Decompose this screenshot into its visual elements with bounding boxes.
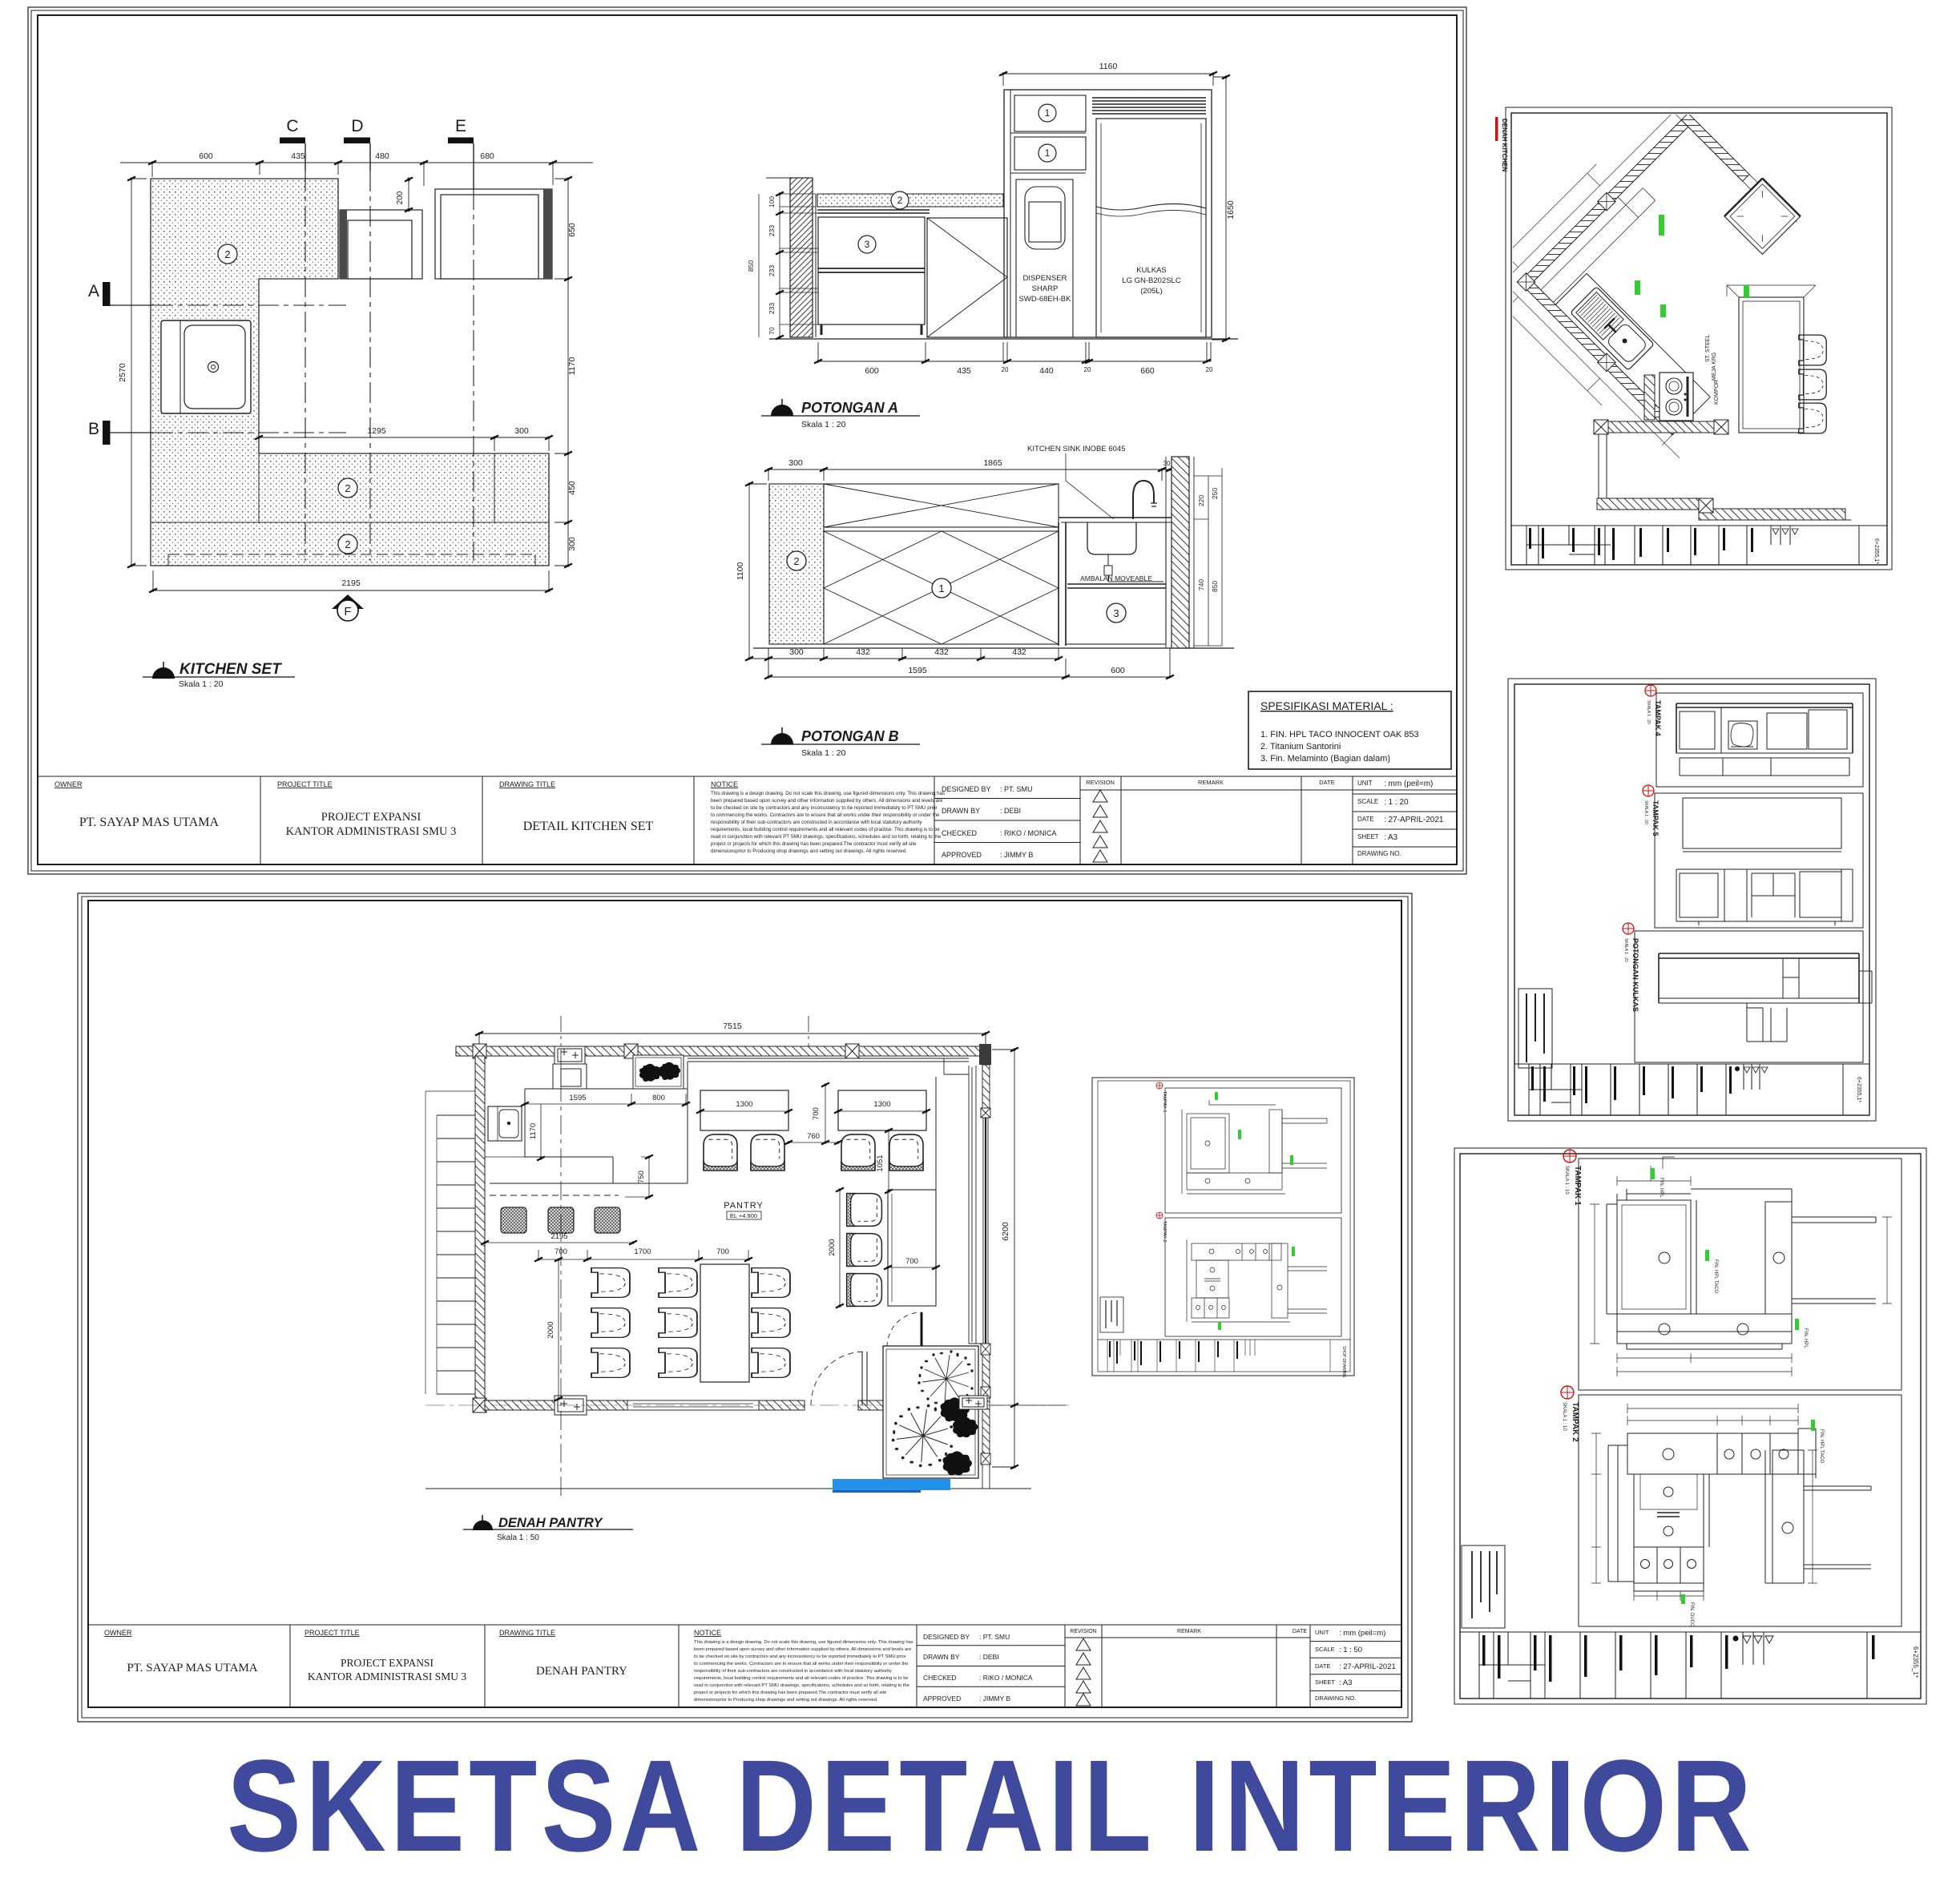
svg-text:read in conjunction with relev: read in conjunction with relevant PT SMU… bbox=[694, 1683, 909, 1688]
svg-text:NOTICE: NOTICE bbox=[694, 1629, 721, 1637]
svg-text:650: 650 bbox=[567, 223, 577, 237]
svg-text:FIN. HPL TACO: FIN. HPL TACO bbox=[1713, 1259, 1718, 1294]
svg-text:been prepared based upon surve: been prepared based upon survey and othe… bbox=[694, 1647, 911, 1652]
svg-text:SHARP: SHARP bbox=[1032, 284, 1059, 293]
svg-text:project or projects for which: project or projects for which this drawi… bbox=[711, 841, 917, 847]
svg-text:1865: 1865 bbox=[983, 458, 1002, 468]
svg-text:FIN. DUCO: FIN. DUCO bbox=[1689, 1602, 1694, 1627]
svg-text:3. Fin. Melaminto (Bagian dala: 3. Fin. Melaminto (Bagian dalam) bbox=[1260, 754, 1390, 764]
svg-text:: RIKO / MONICA: : RIKO / MONICA bbox=[979, 1674, 1033, 1682]
svg-text:DENAH PANTRY: DENAH PANTRY bbox=[498, 1516, 604, 1530]
svg-text:to commencing the works. Contr: to commencing the works. Contractors are… bbox=[694, 1662, 908, 1666]
svg-text:OWNER: OWNER bbox=[104, 1629, 132, 1637]
svg-text:2: 2 bbox=[897, 195, 903, 206]
svg-text:20: 20 bbox=[1084, 366, 1091, 373]
svg-text:: 27-APRIL-2021: : 27-APRIL-2021 bbox=[1339, 1662, 1396, 1671]
svg-text:740: 740 bbox=[1197, 579, 1205, 590]
svg-text:440: 440 bbox=[1039, 366, 1054, 376]
svg-text:Skala 1 : 20: Skala 1 : 20 bbox=[179, 679, 224, 689]
svg-text:2: 2 bbox=[345, 482, 350, 494]
svg-text:A: A bbox=[88, 282, 99, 300]
svg-text:SHEET: SHEET bbox=[1315, 1678, 1335, 1686]
svg-text:E: E bbox=[455, 117, 466, 135]
svg-text:PROJECT EXPANSI: PROJECT EXPANSI bbox=[321, 811, 421, 824]
svg-text:: RIKO / MONICA: : RIKO / MONICA bbox=[1000, 829, 1057, 837]
svg-text:been prepared based upon surve: been prepared based upon survey and othe… bbox=[711, 798, 943, 804]
svg-text:6+2355,1*: 6+2355,1* bbox=[1856, 1077, 1861, 1102]
svg-text:1300: 1300 bbox=[736, 1100, 752, 1109]
svg-text:432: 432 bbox=[856, 647, 870, 657]
svg-text:TAMPAK 1: TAMPAK 1 bbox=[1573, 1166, 1582, 1206]
svg-text:3: 3 bbox=[1113, 607, 1119, 619]
svg-text:SKALA 1 : 20: SKALA 1 : 20 bbox=[1643, 800, 1648, 824]
svg-text:300: 300 bbox=[788, 458, 803, 468]
svg-text:1170: 1170 bbox=[529, 1123, 538, 1139]
svg-text:responsibility of their sub-co: responsibility of their sub-contractors … bbox=[711, 820, 922, 825]
svg-text:: 1 : 50: : 1 : 50 bbox=[1339, 1646, 1362, 1654]
svg-text:REMARK: REMARK bbox=[1198, 779, 1224, 786]
svg-text:700: 700 bbox=[716, 1247, 729, 1256]
svg-text:2570: 2570 bbox=[118, 363, 127, 382]
svg-text:: 27-APRIL-2021: : 27-APRIL-2021 bbox=[1384, 816, 1444, 824]
svg-text:POTONGAN B: POTONGAN B bbox=[801, 728, 899, 744]
svg-text:200: 200 bbox=[396, 191, 405, 204]
svg-text:UNIT: UNIT bbox=[1315, 1629, 1329, 1636]
svg-text:2000: 2000 bbox=[828, 1239, 837, 1255]
svg-text:DETAIL KITCHEN SET: DETAIL KITCHEN SET bbox=[523, 820, 654, 833]
svg-text:2195: 2195 bbox=[550, 1232, 567, 1241]
svg-text:B: B bbox=[88, 420, 99, 438]
svg-text:MEJA KRG: MEJA KRG bbox=[1712, 353, 1717, 381]
svg-text:1100: 1100 bbox=[736, 562, 745, 581]
svg-text:432: 432 bbox=[934, 647, 949, 657]
svg-text:KOMPOR: KOMPOR bbox=[1714, 380, 1720, 405]
svg-text:DRAWING TITLE: DRAWING TITLE bbox=[499, 1629, 555, 1637]
svg-text:480: 480 bbox=[375, 151, 389, 161]
svg-text:LG GN-B202SLC: LG GN-B202SLC bbox=[1122, 276, 1181, 285]
svg-text:project or projects for which: project or projects for which this drawi… bbox=[694, 1690, 886, 1695]
svg-text:SCALE: SCALE bbox=[1357, 798, 1378, 805]
svg-text:300: 300 bbox=[789, 647, 804, 657]
svg-text:KANTOR ADMINISTRASI SMU 3: KANTOR ADMINISTRASI SMU 3 bbox=[286, 825, 457, 838]
svg-text:FIN. HPL TACO: FIN. HPL TACO bbox=[1819, 1429, 1824, 1464]
svg-text:: PT. SMU: : PT. SMU bbox=[979, 1633, 1010, 1641]
svg-text:Skala 1 : 50: Skala 1 : 50 bbox=[497, 1533, 539, 1542]
svg-text:DATE: DATE bbox=[1319, 779, 1334, 786]
svg-text:REMARK: REMARK bbox=[1177, 1629, 1201, 1634]
svg-text:DESIGNED BY: DESIGNED BY bbox=[923, 1633, 970, 1641]
svg-text:dimensionsprior to Producing s: dimensionsprior to Producing shop drawin… bbox=[694, 1698, 878, 1703]
svg-text:DRAWN BY: DRAWN BY bbox=[942, 807, 980, 815]
svg-text:responsibility of their sub-co: responsibility of their sub-contractors … bbox=[694, 1669, 892, 1674]
svg-text:1295: 1295 bbox=[367, 426, 386, 436]
svg-text:requirements, local building c: requirements, local building control req… bbox=[694, 1676, 909, 1681]
svg-text:TAMPAK 1: TAMPAK 1 bbox=[1162, 1091, 1167, 1112]
svg-text:2: 2 bbox=[345, 538, 350, 550]
svg-text:CHECKED: CHECKED bbox=[942, 829, 978, 837]
svg-text:700: 700 bbox=[905, 1257, 918, 1266]
svg-text:: mm (peil=m): : mm (peil=m) bbox=[1384, 780, 1433, 788]
svg-text:233: 233 bbox=[768, 265, 776, 276]
svg-text:DENAH KITCHEN: DENAH KITCHEN bbox=[1501, 119, 1508, 171]
svg-text:: A3: : A3 bbox=[1339, 1678, 1352, 1687]
svg-text:APPROVED: APPROVED bbox=[942, 851, 982, 859]
svg-text:DATE: DATE bbox=[1293, 1629, 1307, 1634]
svg-text:TAMPAK 5: TAMPAK 5 bbox=[1651, 800, 1660, 836]
svg-text:233: 233 bbox=[768, 303, 776, 314]
svg-text:(205L): (205L) bbox=[1140, 287, 1162, 296]
svg-text:Skala 1 : 20: Skala 1 : 20 bbox=[801, 748, 846, 758]
svg-text:SKALA 1 : 20: SKALA 1 : 20 bbox=[1646, 700, 1651, 724]
svg-text:435: 435 bbox=[291, 151, 305, 161]
svg-text:KITCHEN SET: KITCHEN SET bbox=[179, 661, 282, 678]
svg-text:220: 220 bbox=[1197, 495, 1205, 506]
svg-text:7515: 7515 bbox=[723, 1022, 742, 1031]
svg-text:300: 300 bbox=[567, 537, 577, 551]
svg-text:1170: 1170 bbox=[567, 357, 577, 376]
svg-text:680: 680 bbox=[480, 151, 494, 161]
svg-text:660: 660 bbox=[1140, 366, 1155, 376]
svg-text:PROJECT EXPANSI: PROJECT EXPANSI bbox=[341, 1657, 434, 1669]
svg-text:to be checked on site by contr: to be checked on site by contractors and… bbox=[694, 1654, 906, 1659]
svg-text:POTONGAN KULKAS: POTONGAN KULKAS bbox=[1631, 938, 1639, 1012]
svg-text:700: 700 bbox=[812, 1107, 821, 1120]
svg-text:1: 1 bbox=[1045, 147, 1051, 159]
svg-text:SKETSA DETAIL INTERIOR: SKETSA DETAIL INTERIOR bbox=[227, 1732, 1756, 1879]
svg-text:1: 1 bbox=[938, 582, 944, 594]
svg-text:FIN. HPL: FIN. HPL bbox=[1803, 1328, 1808, 1348]
svg-text:2000: 2000 bbox=[546, 1321, 555, 1338]
svg-text:600: 600 bbox=[865, 366, 879, 376]
svg-text:REVISION: REVISION bbox=[1086, 779, 1115, 786]
svg-text:TAMPAK 2: TAMPAK 2 bbox=[1571, 1402, 1579, 1442]
svg-text:2: 2 bbox=[224, 248, 230, 260]
svg-text:UNIT: UNIT bbox=[1357, 780, 1373, 787]
svg-text:432: 432 bbox=[1012, 647, 1026, 657]
svg-text:KANTOR ADMINISTRASI SMU 3: KANTOR ADMINISTRASI SMU 3 bbox=[308, 1670, 466, 1682]
svg-text:requirements, local building c: requirements, local building control req… bbox=[711, 827, 940, 832]
svg-text:1595: 1595 bbox=[569, 1094, 586, 1102]
svg-text:850: 850 bbox=[747, 260, 755, 272]
svg-text:1700: 1700 bbox=[634, 1247, 651, 1256]
svg-text:1300: 1300 bbox=[873, 1100, 890, 1109]
svg-text:: JIMMY B: : JIMMY B bbox=[1000, 851, 1033, 859]
svg-text:DRAWING NO.: DRAWING NO. bbox=[1315, 1694, 1356, 1702]
svg-text:NOTICE: NOTICE bbox=[711, 780, 738, 788]
svg-text:100: 100 bbox=[768, 196, 776, 208]
svg-text:APPROVED: APPROVED bbox=[923, 1694, 961, 1703]
svg-text:70: 70 bbox=[768, 327, 776, 335]
svg-text:SKALA 1 : 10: SKALA 1 : 10 bbox=[1564, 1166, 1569, 1195]
svg-text:read in conjunction with relev: read in conjunction with relevant PT SMU… bbox=[711, 834, 942, 840]
svg-text:to commencing the works. Contr: to commencing the works. Contractors are… bbox=[711, 812, 940, 818]
svg-text:DATE: DATE bbox=[1357, 816, 1374, 823]
svg-text:DESIGNED BY: DESIGNED BY bbox=[942, 785, 991, 793]
svg-text:PT. SAYAP MAS UTAMA: PT. SAYAP MAS UTAMA bbox=[79, 816, 220, 829]
svg-text:1051: 1051 bbox=[876, 1154, 885, 1171]
svg-text:300: 300 bbox=[514, 426, 529, 436]
svg-text:250: 250 bbox=[1211, 488, 1219, 499]
svg-text:This drawing is a design drawi: This drawing is a design drawing. Do not… bbox=[711, 791, 945, 796]
svg-text:2. Titanium Santorini: 2. Titanium Santorini bbox=[1260, 742, 1341, 752]
svg-text:PROJECT TITLE: PROJECT TITLE bbox=[304, 1629, 360, 1637]
svg-text:750: 750 bbox=[637, 1171, 646, 1183]
svg-text:233: 233 bbox=[768, 225, 776, 236]
svg-text:1. FIN. HPL TACO INNOCENT OAK: 1. FIN. HPL TACO INNOCENT OAK 853 bbox=[1260, 730, 1419, 739]
svg-text:PT. SAYAP MAS UTAMA: PT. SAYAP MAS UTAMA bbox=[127, 1662, 257, 1674]
svg-text:REVISION: REVISION bbox=[1070, 1629, 1096, 1634]
svg-text:450: 450 bbox=[567, 481, 577, 495]
svg-text:6+2355_1*: 6+2355_1* bbox=[1912, 1646, 1919, 1678]
svg-text:: JIMMY B: : JIMMY B bbox=[979, 1694, 1010, 1703]
svg-text:SHEET: SHEET bbox=[1357, 833, 1379, 840]
svg-text:DRAWING NO.: DRAWING NO. bbox=[1357, 850, 1401, 857]
svg-text:C: C bbox=[286, 117, 298, 135]
svg-text:: A3: : A3 bbox=[1384, 833, 1398, 842]
svg-text:D: D bbox=[351, 117, 363, 135]
svg-text:DRAWING TITLE: DRAWING TITLE bbox=[499, 780, 555, 788]
svg-text:EL +4.900: EL +4.900 bbox=[730, 1212, 757, 1219]
svg-text:600: 600 bbox=[1111, 666, 1125, 675]
svg-text:ST. STEEL: ST. STEEL bbox=[1705, 335, 1711, 362]
svg-text:FIN. HPL: FIN. HPL bbox=[1659, 1178, 1664, 1198]
svg-text:760: 760 bbox=[807, 1132, 820, 1141]
svg-text:: DEBI: : DEBI bbox=[1000, 807, 1021, 815]
svg-text:DENAH PANTRY: DENAH PANTRY bbox=[536, 1665, 627, 1678]
svg-text:to be checked on site by contr: to be checked on site by contractors and… bbox=[711, 805, 938, 811]
svg-text:OWNER: OWNER bbox=[54, 780, 83, 788]
svg-text:6200: 6200 bbox=[1001, 1222, 1010, 1241]
svg-text:TAMPAK 2: TAMPAK 2 bbox=[1162, 1221, 1167, 1242]
svg-text:3: 3 bbox=[865, 239, 870, 250]
svg-text:850: 850 bbox=[1211, 581, 1219, 592]
svg-text:SHOP DRAWING: SHOP DRAWING bbox=[1341, 1346, 1346, 1378]
svg-text:6+2355,1*: 6+2355,1* bbox=[1873, 538, 1879, 564]
svg-text:: 1 : 20: : 1 : 20 bbox=[1384, 798, 1409, 807]
svg-text:2195: 2195 bbox=[341, 578, 361, 588]
svg-text:SWD-68EH-BK: SWD-68EH-BK bbox=[1019, 295, 1072, 304]
svg-text:600: 600 bbox=[199, 151, 213, 161]
svg-text:POTONGAN A: POTONGAN A bbox=[801, 400, 898, 416]
svg-text:1160: 1160 bbox=[1099, 62, 1118, 71]
svg-text:DRAWN BY: DRAWN BY bbox=[923, 1653, 960, 1661]
svg-text:CHECKED: CHECKED bbox=[923, 1674, 957, 1682]
svg-text:20: 20 bbox=[1206, 366, 1213, 373]
svg-text:800: 800 bbox=[652, 1094, 665, 1102]
svg-text:: PT. SMU: : PT. SMU bbox=[1000, 785, 1033, 793]
svg-text:: DEBI: : DEBI bbox=[979, 1653, 999, 1661]
svg-text:AMBALAN MOVEABLE: AMBALAN MOVEABLE bbox=[1080, 574, 1152, 582]
svg-text:DISPENSER: DISPENSER bbox=[1023, 274, 1067, 283]
svg-text:Skala 1 : 20: Skala 1 : 20 bbox=[801, 420, 846, 429]
svg-text:2: 2 bbox=[793, 555, 799, 567]
svg-text:PROJECT TITLE: PROJECT TITLE bbox=[277, 780, 333, 788]
svg-text:dimensionsprior to Producing s: dimensionsprior to Producing shop drawin… bbox=[711, 848, 907, 854]
svg-text:DATE: DATE bbox=[1315, 1662, 1330, 1670]
svg-text:F: F bbox=[344, 605, 351, 619]
svg-text:1650: 1650 bbox=[1226, 200, 1236, 220]
svg-text:30: 30 bbox=[1163, 460, 1171, 467]
svg-text:KITCHEN SINK INOBE 6045: KITCHEN SINK INOBE 6045 bbox=[1027, 445, 1125, 453]
svg-text:This drawing is a design drawi: This drawing is a design drawing. Do not… bbox=[694, 1640, 913, 1645]
svg-text:1: 1 bbox=[1045, 107, 1051, 119]
svg-text:SKALA 1 : 20: SKALA 1 : 20 bbox=[1623, 938, 1628, 962]
svg-text:SCALE: SCALE bbox=[1315, 1646, 1335, 1653]
svg-text:: mm (peil=m): : mm (peil=m) bbox=[1339, 1629, 1385, 1638]
svg-text:SPESIFIKASI MATERIAL :: SPESIFIKASI MATERIAL : bbox=[1260, 699, 1393, 712]
svg-text:KULKAS: KULKAS bbox=[1136, 266, 1167, 275]
svg-text:SKALA 1 : 10: SKALA 1 : 10 bbox=[1562, 1402, 1567, 1431]
svg-text:20: 20 bbox=[1002, 366, 1009, 373]
svg-text:1595: 1595 bbox=[908, 666, 927, 675]
svg-text:435: 435 bbox=[957, 366, 971, 376]
svg-text:PANTRY: PANTRY bbox=[724, 1201, 764, 1211]
svg-text:TAMPAK 4: TAMPAK 4 bbox=[1654, 700, 1662, 736]
